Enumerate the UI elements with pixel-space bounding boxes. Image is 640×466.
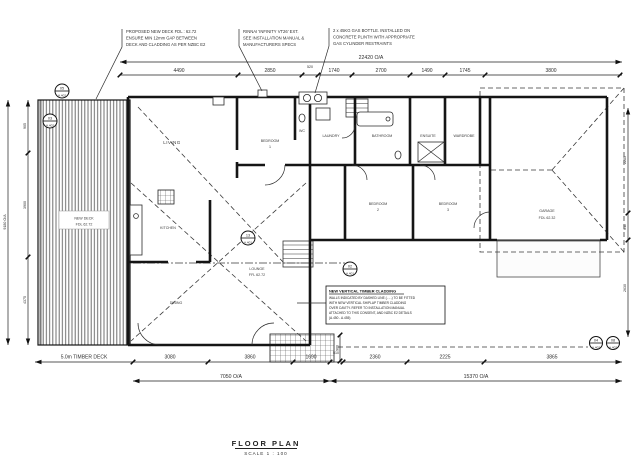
- deck-steps: [270, 334, 334, 362]
- dim-top-seg: 3800: [545, 68, 556, 74]
- marker-sheet: A.402: [46, 124, 54, 128]
- room-label-living: LIVING: [163, 140, 180, 145]
- dim-stair: 900: [336, 333, 343, 364]
- dim-bottom-seg: 3080: [164, 355, 175, 361]
- room-label-lounge: LOUNGE: [249, 267, 265, 271]
- room-label-bedroom3: BEDROOM: [439, 202, 458, 206]
- room-label-kitchen: KITCHEN: [160, 226, 176, 230]
- fixtures: [130, 90, 444, 255]
- room-label-lounge-ffl: FFL 62.72: [249, 273, 265, 277]
- dim-top-overall: 22420 O/A: [359, 55, 384, 61]
- dim-bottom-oa-left: 7050 O/A: [220, 374, 242, 380]
- marker-sheet: A.402: [609, 346, 617, 350]
- gas-bottles: [299, 92, 327, 104]
- room-label-dining: DINING: [170, 301, 183, 305]
- marker-sheet: A.401: [346, 272, 354, 276]
- section-marker: 03 A.402: [43, 114, 57, 128]
- note-gas: 2 x 45KG GAS BOTTLE. INSTALLED ON CONCRE…: [333, 28, 415, 46]
- cladding-note: NEW VERTICAL TIMBER CLADDING WALLS INDIC…: [326, 286, 445, 324]
- marker-num: 05: [60, 87, 64, 91]
- cladding-note-line: ATTACHED TO THIS CONSENT, AND NZBC E2 DE…: [329, 311, 412, 315]
- drawing-title: FLOOR PLAN: [232, 439, 301, 448]
- cladding-note-line: WALLS INDICATED BY DASHED LINE (- - -) T…: [329, 296, 416, 300]
- room-label-deck-fdl: FDL 62.72: [76, 223, 93, 227]
- room-label-bedroom1-num: 1: [269, 145, 271, 149]
- dim-bottom-deck: 5.0m TIMBER DECK: [61, 355, 108, 361]
- dim-top-seg: 2850: [264, 68, 275, 74]
- marker-sheet: A.402: [592, 346, 600, 350]
- room-label-ensuite: ENSUITE: [420, 134, 436, 138]
- room-label-laundry: LAUNDRY: [322, 134, 340, 138]
- dim-bottom-seg: 3865: [546, 355, 557, 361]
- note-rinnai-line: RINNAI 'INFINITY VT26' EXT.: [243, 29, 299, 34]
- note-rinnai: RINNAI 'INFINITY VT26' EXT. SEE INSTALLA…: [243, 29, 304, 47]
- dim-top: 22420 O/A 4490 2850 520 1740 2700 1490 1…: [118, 55, 623, 77]
- note-gas-line: CONCRETE PLINTH WITH APPROPRIATE: [333, 35, 415, 40]
- note-rinnai-line: SEE INSTALLATION MANUAL &: [243, 36, 304, 41]
- dim-top-seg: 2700: [375, 68, 386, 74]
- room-label-garage-fdl: FDL 62.32: [539, 216, 556, 220]
- section-marker: 02 A.401: [343, 262, 357, 276]
- marker-num: 08: [611, 339, 615, 343]
- fireplace: [158, 190, 174, 204]
- dim-left-seg: 4375: [23, 296, 27, 304]
- title-block: FLOOR PLAN SCALE 1 : 100: [232, 439, 301, 456]
- marker-sheet: A.402: [58, 94, 66, 98]
- dim-top-seg: 1745: [459, 68, 470, 74]
- marker-sheet: A.401: [244, 241, 252, 245]
- section-marker: 05 A.402: [55, 84, 69, 98]
- room-label-bedroom2: BEDROOM: [369, 202, 388, 206]
- note-rinnai-line: MANUFACTURERS SPECS: [243, 42, 296, 47]
- note-gas-line: 2 x 45KG GAS BOTTLE. INSTALLED ON: [333, 28, 410, 33]
- room-label-bedroom3-num: 3: [447, 208, 449, 212]
- note-deck: PROPOSED NEW DECK FDL : 62.72 ENSURE MIN…: [126, 29, 206, 47]
- cladding-note-line: WITH NEW VERTICAL SHIPLAP TIMBER CLADDIN…: [329, 301, 407, 305]
- dim-bottom-oa-right: 15370 O/A: [464, 374, 489, 380]
- dim-bottom-seg: 2360: [369, 355, 380, 361]
- chimney: [213, 97, 224, 105]
- dim-stair-label: 900: [336, 345, 340, 351]
- dim-right: 2285 611 2630: [623, 108, 630, 337]
- interior-walls: [128, 97, 490, 262]
- note-deck-line: ENSURE MIN 12mm GAP BETWEEN: [126, 36, 197, 41]
- dim-top-seg: 520: [307, 65, 313, 69]
- marker-num: 02: [348, 265, 352, 269]
- room-label-bedroom2-num: 2: [377, 208, 379, 212]
- dim-top-seg: 1490: [421, 68, 432, 74]
- cladding-note-line: OVER CAVITY. REFER TO INSTALLATION MANUA…: [329, 306, 405, 310]
- dim-left: 9180 O/A 905 3900 4375: [3, 100, 30, 345]
- room-label-wardrobe: WARDROBE: [453, 134, 475, 138]
- room-label-wc: WC: [299, 129, 305, 133]
- room-label-deck: NEW DECK: [74, 217, 94, 221]
- floor-plan-sheet: PROPOSED NEW DECK FDL : 62.72 ENSURE MIN…: [0, 0, 640, 466]
- kitchen-bench: [130, 205, 142, 255]
- toilet-wc: [299, 114, 305, 122]
- dim-bottom-seg: 1690: [305, 355, 316, 361]
- dim-right-seg: 611: [623, 224, 627, 230]
- garage-apron: [497, 241, 600, 277]
- room-label-bathroom: BATHROOM: [372, 134, 393, 138]
- note-deck-line: DECK AND CLADDING AS PER NZBC E2: [126, 42, 206, 47]
- toilet-bathroom: [395, 151, 401, 159]
- note-gas-line: GAS CYLINDER RESTRAINTS: [333, 41, 392, 46]
- cladding-note-line: (A.450 - A.455): [329, 316, 350, 320]
- marker-num: 03: [48, 117, 52, 121]
- laundry-tub: [316, 108, 330, 120]
- dim-right-seg: 2630: [623, 284, 627, 292]
- marker-num: 04: [594, 339, 598, 343]
- dim-left-seg: 905: [23, 123, 27, 129]
- dim-top-seg: 1740: [328, 68, 339, 74]
- drawing-scale: SCALE 1 : 100: [244, 451, 287, 456]
- dim-right-seg: 2285: [623, 156, 627, 164]
- room-labels: LIVING BEDROOM 1 WC LAUNDRY BATHROOM ENS…: [74, 129, 555, 305]
- room-label-garage: GARAGE: [539, 209, 555, 213]
- dim-left-seg: 3900: [23, 201, 27, 209]
- room-label-bedroom1: BEDROOM: [261, 139, 280, 143]
- cladding-note-title: NEW VERTICAL TIMBER CLADDING: [329, 289, 396, 294]
- ensuite-shower: [418, 142, 444, 162]
- floor-plan-drawing: PROPOSED NEW DECK FDL : 62.72 ENSURE MIN…: [0, 0, 640, 466]
- dim-top-seg: 4490: [173, 68, 184, 74]
- dim-bottom-seg: 3860: [244, 355, 255, 361]
- dim-left-overall: 9180 O/A: [3, 214, 7, 230]
- note-deck-line: PROPOSED NEW DECK FDL : 62.72: [126, 29, 197, 34]
- section-marker: 04 A.402: [590, 337, 603, 350]
- section-marker: 13 A.401: [241, 231, 255, 245]
- dim-bottom-seg: 2225: [439, 355, 450, 361]
- marker-num: 13: [246, 234, 250, 238]
- section-marker: 08 A.402: [607, 337, 620, 350]
- rinnai-unit: [258, 90, 267, 97]
